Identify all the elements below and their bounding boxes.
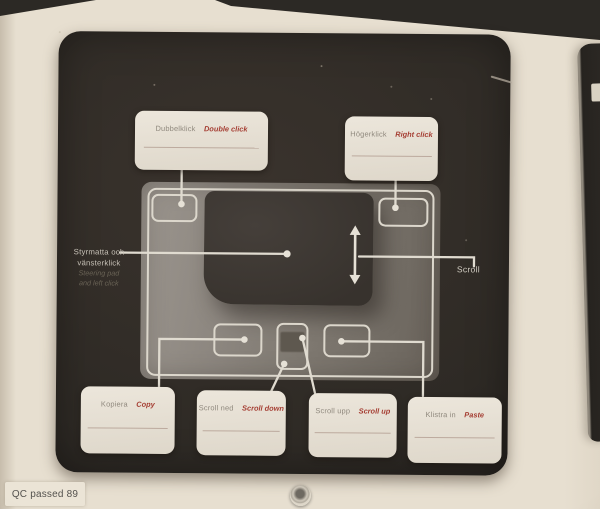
tilted-photo-content: Dubbelklick Double click Högerklick Righ… <box>0 0 600 509</box>
label-swedish: Scroll ned <box>199 403 234 412</box>
card-divider-line <box>144 147 258 149</box>
card-divider-line <box>315 432 391 434</box>
card-divider-line <box>87 427 168 429</box>
label-swedish: Högerklick <box>350 129 387 138</box>
leader-line-scroll-up <box>302 338 315 393</box>
scroll-label: Scroll <box>457 264 480 274</box>
label-english: Scroll up <box>359 406 391 415</box>
label-english-line2: and left click <box>58 278 140 289</box>
label-card-double-click: Dubbelklick Double click <box>135 111 268 171</box>
label-swedish: Dubbelklick <box>155 124 195 133</box>
label-card-right-click: Högerklick Right click <box>345 116 438 181</box>
leader-dots <box>177 201 399 368</box>
label-english: Scroll down <box>242 404 284 413</box>
label-row: Scroll ned Scroll down <box>197 397 286 416</box>
label-swedish-line2: vänsterklick <box>58 258 140 269</box>
leader-line-paste <box>341 341 423 396</box>
label-row: Dubbelklick Double click <box>135 118 268 137</box>
card-divider-line <box>414 437 495 439</box>
label-row: Scroll upp Scroll up <box>309 400 397 419</box>
left-click-label: Styrmatta och vänsterklick Steering pad … <box>58 247 140 289</box>
leader-line-copy <box>159 339 244 390</box>
label-swedish: Klistra in <box>425 410 455 419</box>
label-english: Paste <box>464 410 484 419</box>
label-card-scroll-up: Scroll upp Scroll up <box>308 393 396 458</box>
latch-button <box>290 485 311 506</box>
label-english: Right click <box>395 130 432 139</box>
label-row: Kopiera Copy <box>81 393 175 412</box>
label-swedish: Kopiera <box>101 399 128 408</box>
label-row: Klistra in Paste <box>408 404 502 423</box>
label-card-scroll-down: Scroll ned Scroll down <box>196 390 286 456</box>
card-divider-line <box>203 430 280 432</box>
label-swedish-line1: Styrmatta och <box>58 247 140 258</box>
label-english: Copy <box>136 400 155 409</box>
label-swedish: Scroll upp <box>315 406 350 415</box>
scroll-arrow-icon <box>349 225 360 284</box>
leader-line-left-click <box>120 253 287 254</box>
label-card-paste: Klistra in Paste <box>407 397 502 464</box>
label-card-copy: Kopiera Copy <box>80 386 175 454</box>
label-english-line1: Steering pad <box>58 268 140 279</box>
photo-scene: Dubbelklick Double click Högerklick Righ… <box>0 0 600 509</box>
label-row: Högerklick Right click <box>345 123 438 142</box>
leader-line-scroll-down <box>271 364 284 392</box>
label-english: Double click <box>204 124 248 133</box>
qc-passed-sticker: QC passed 89 <box>5 482 85 506</box>
card-divider-line <box>351 155 431 157</box>
